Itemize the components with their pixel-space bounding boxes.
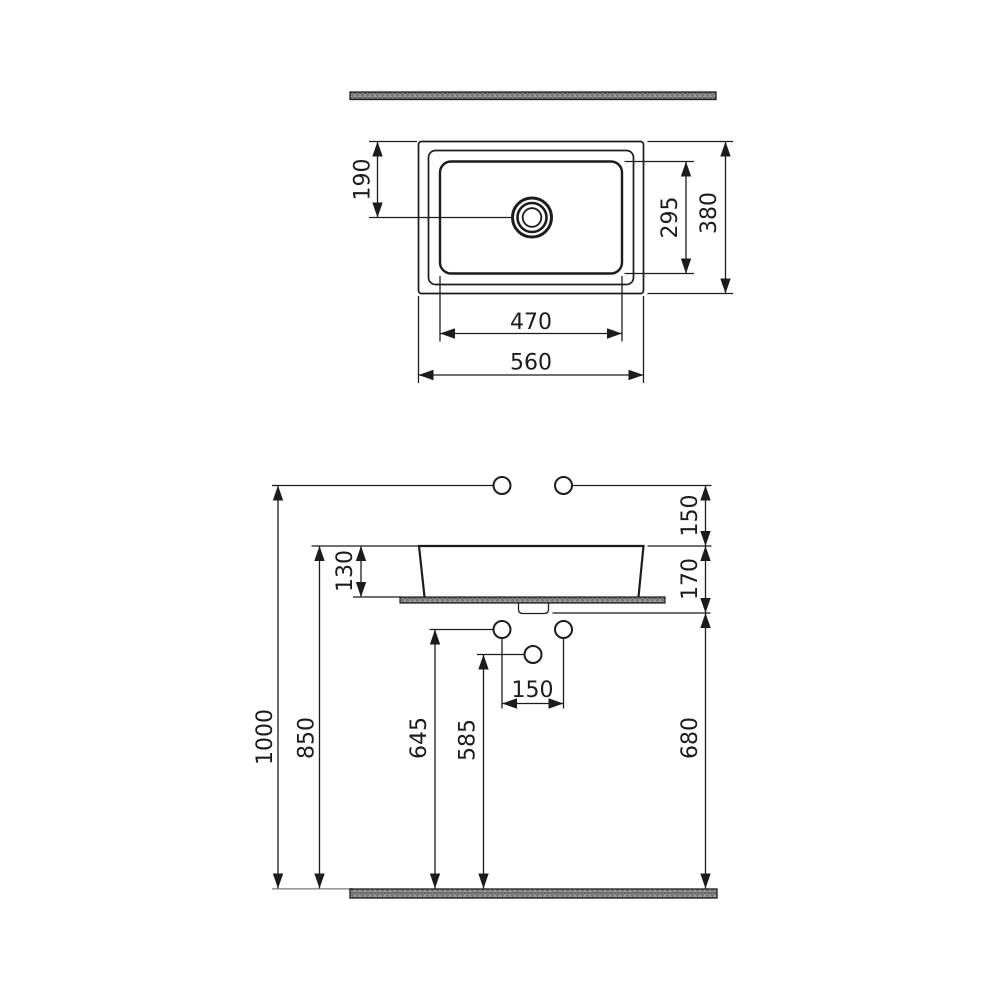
dim-label-680: 680 [678, 717, 703, 759]
dim-waste-height: 585 [456, 655, 484, 889]
dim-supply-above-rim: 150 [648, 486, 712, 547]
angle-valve-left [494, 621, 511, 638]
plan-view: 190 295 380 470 560 [350, 92, 733, 383]
dim-supply-height: 1000 [253, 486, 278, 889]
dim-label-130: 130 [333, 550, 358, 592]
floor-section [350, 889, 717, 898]
wall-section [350, 92, 716, 100]
dim-label-585: 585 [456, 719, 481, 761]
dim-valve-height: 645 [407, 630, 435, 889]
dim-label-1000: 1000 [253, 709, 278, 765]
wall-supply-hole-right [555, 477, 572, 494]
dim-valve-spacing: 150 [502, 678, 564, 704]
dim-bowl-width: 470 [440, 276, 622, 342]
waste-pipe-hole [525, 646, 542, 663]
dim-bowl-depth: 295 [625, 162, 695, 274]
dim-rim-to-outlet: 170 [678, 546, 705, 613]
technical-drawing: 190 295 380 470 560 [0, 0, 990, 990]
countertop-section [400, 597, 665, 603]
angle-valve-right [555, 621, 572, 638]
front-view: 1000 850 130 645 585 150 [253, 477, 717, 898]
dim-label-150-spacing: 150 [512, 678, 554, 703]
dim-label-560: 560 [510, 351, 552, 376]
dim-label-850: 850 [295, 717, 320, 759]
basin-profile [419, 546, 644, 597]
drawing-sheet: 190 295 380 470 560 [0, 0, 990, 990]
dim-label-190: 190 [351, 159, 376, 201]
dim-basin-height: 130 [333, 546, 400, 597]
dim-label-170: 170 [678, 558, 703, 600]
dim-label-645: 645 [407, 717, 432, 759]
waste-outlet-cup [519, 604, 549, 614]
dim-label-150-top: 150 [678, 495, 703, 537]
drain-icon [513, 198, 552, 237]
dim-label-470: 470 [510, 310, 552, 335]
wall-supply-hole-left [494, 477, 511, 494]
dim-outlet-height: 680 [678, 613, 705, 889]
dim-label-380: 380 [697, 192, 722, 234]
dim-label-295: 295 [658, 197, 683, 239]
